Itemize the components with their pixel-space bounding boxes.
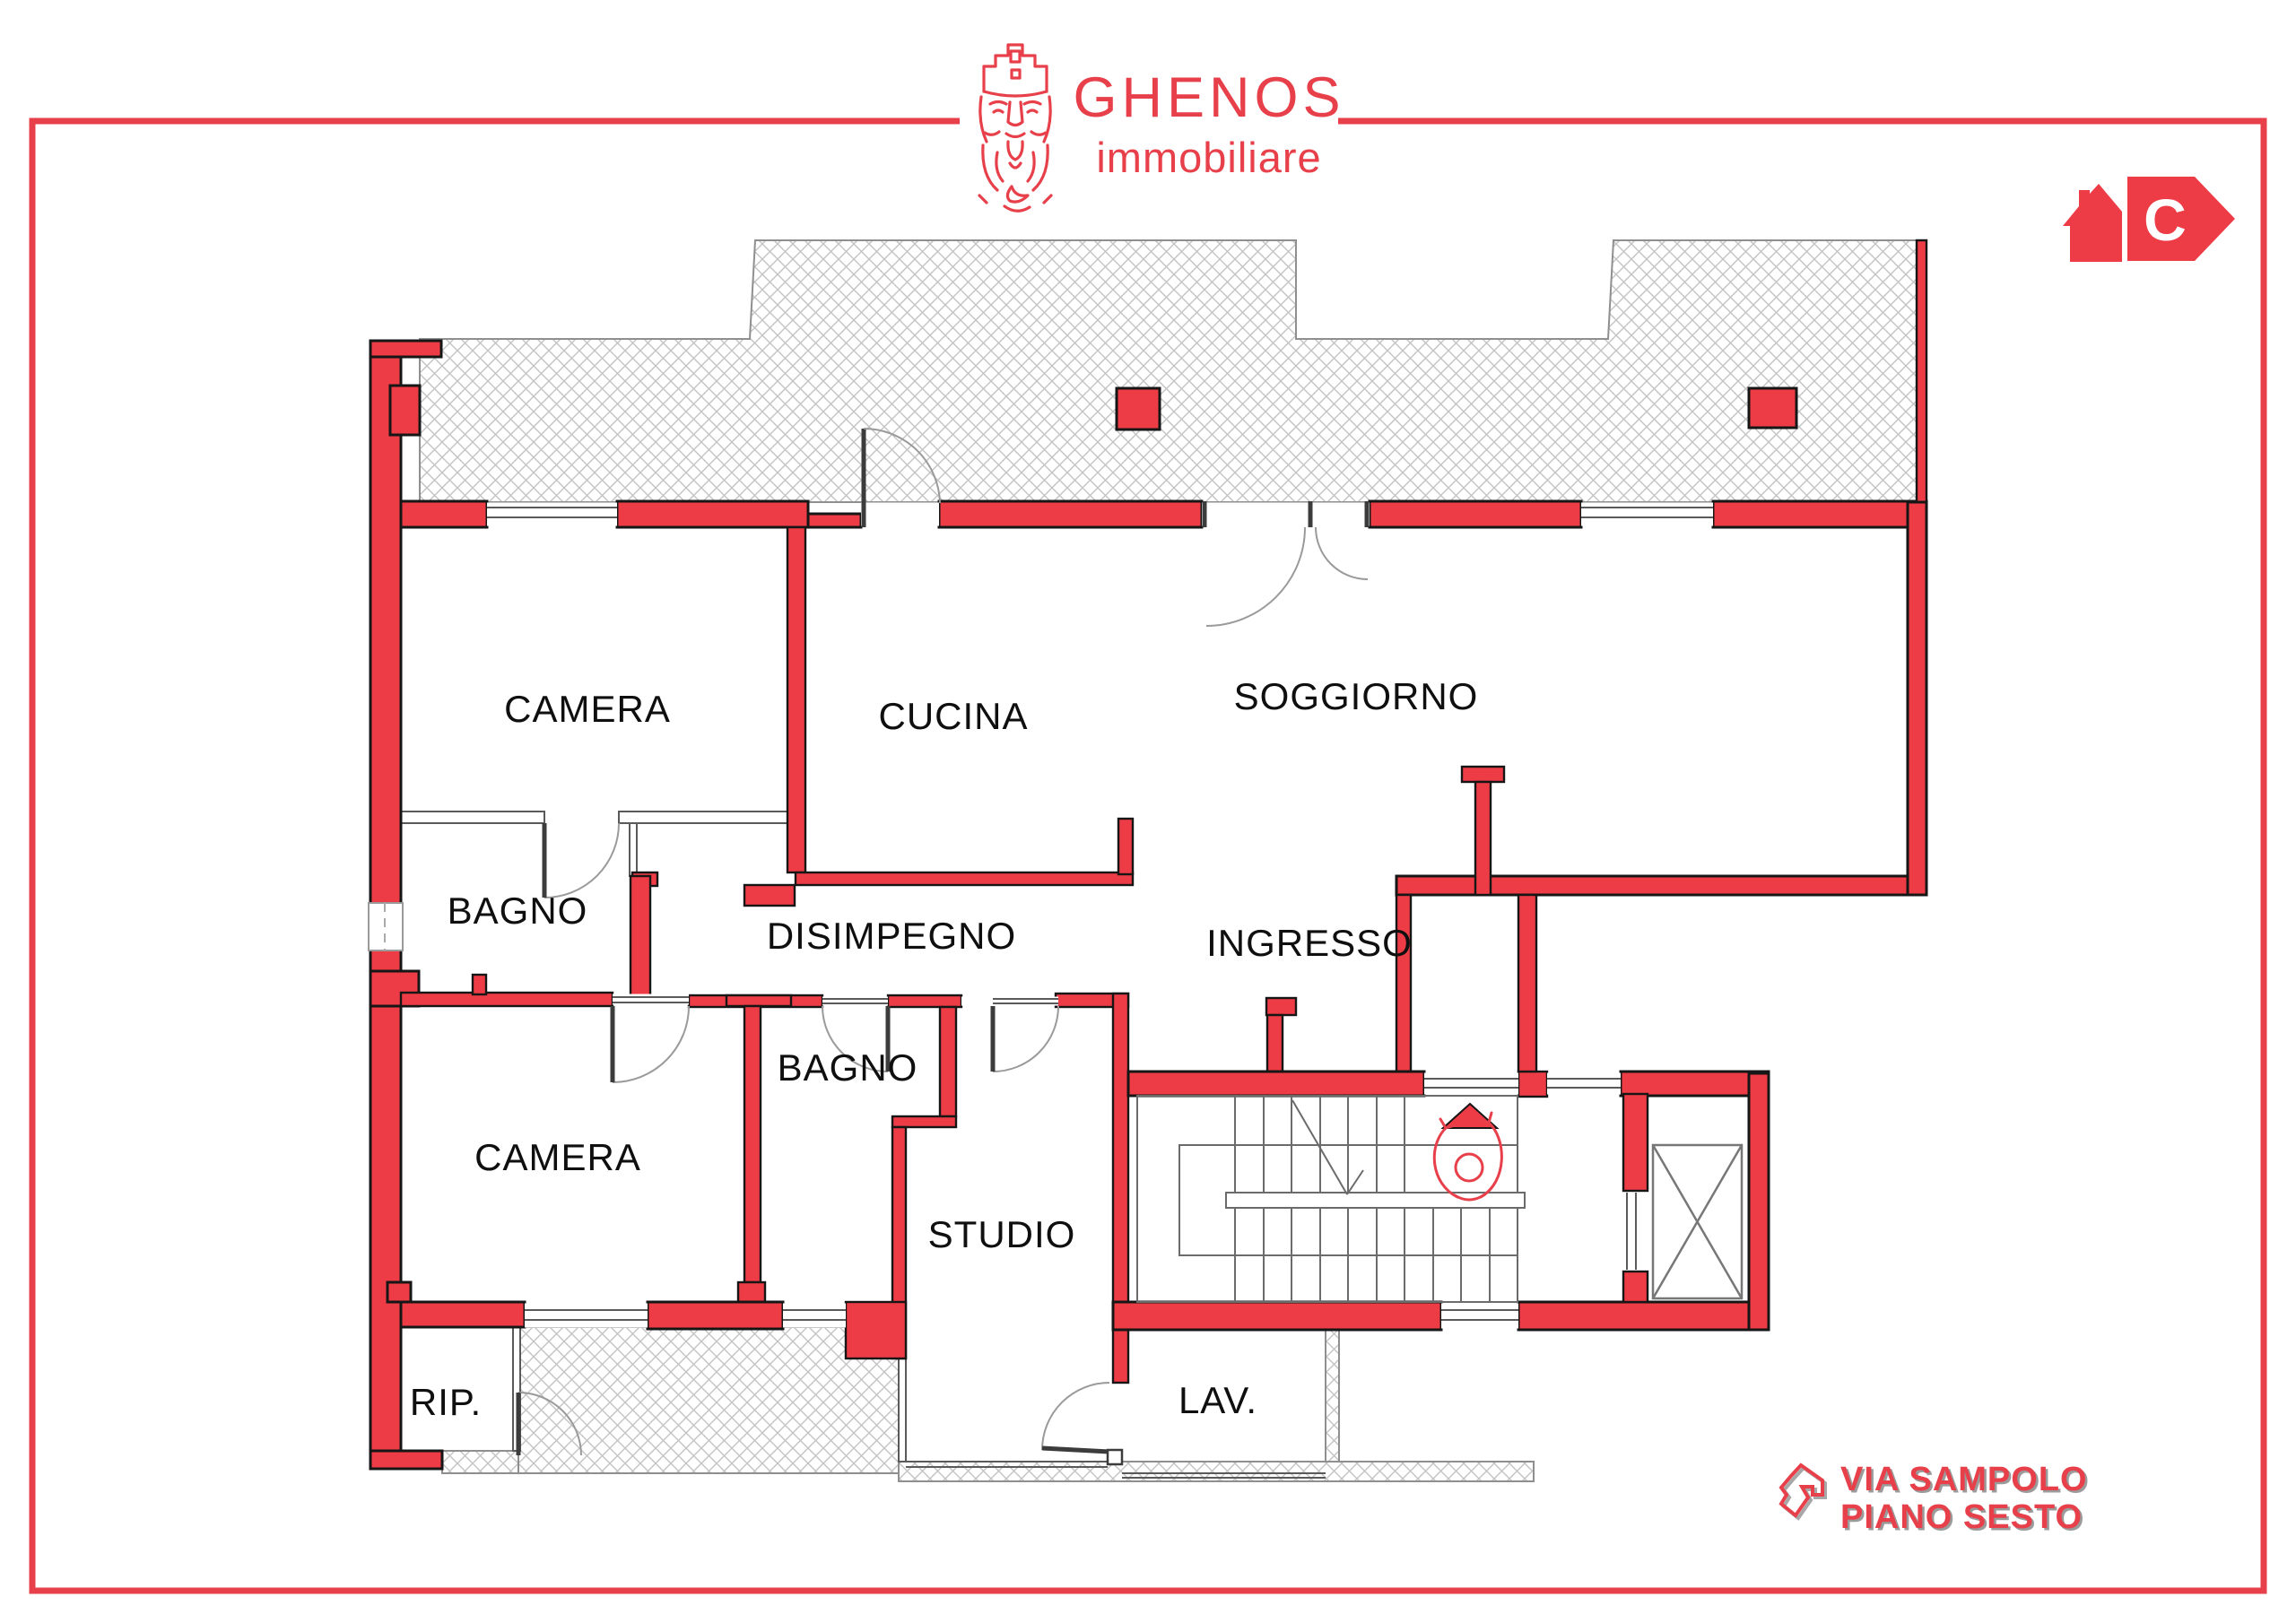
brand-tagline: immobiliare	[1096, 134, 1321, 181]
elevator-door-sill	[1622, 1193, 1649, 1270]
room-label-disimpegno: DISIMPEGNO	[767, 915, 1016, 957]
room-label-ripostiglio: RIP.	[410, 1381, 482, 1423]
window-camera-2	[525, 1304, 648, 1328]
room-label-lavanderia: LAV.	[1178, 1379, 1257, 1421]
entrance-door-sill	[1424, 1073, 1518, 1095]
address-line1: VIA SAMPOLO	[1840, 1461, 2088, 1498]
terrace-balcony	[420, 240, 1917, 502]
landing-opening-sill	[1547, 1073, 1621, 1095]
room-label-bagno-2: BAGNO	[778, 1046, 918, 1089]
energy-class-letter: C	[2144, 187, 2187, 253]
room-label-studio: STUDIO	[928, 1213, 1076, 1255]
window-left-wall	[369, 903, 403, 950]
double-door-soggiorno	[1202, 501, 1370, 626]
rear-balcony-walkway	[442, 1327, 1534, 1481]
brand-logo: GHENOS immobiliare	[979, 45, 1345, 211]
floorplan-page: GHENOS immobiliare C	[0, 0, 2296, 1623]
address-block: ​ VIA SAMPOLO VIA SAMPOLO PIANO SESTO PI…	[1781, 1461, 2090, 1539]
room-label-bagno-1: BAGNO	[448, 890, 588, 932]
room-label-camera-1: CAMERA	[504, 688, 671, 730]
door-sill-bagno-2	[822, 997, 888, 1006]
energy-class-badge: C	[2063, 177, 2235, 262]
mini-floorplan-icon	[1781, 1465, 1825, 1518]
window-camera-1	[487, 503, 617, 526]
room-label-cucina: CUCINA	[878, 695, 1028, 737]
door-sill-camera-2	[613, 994, 689, 1005]
terrace-pillar	[1749, 388, 1796, 428]
house-icon	[2063, 184, 2122, 262]
window-soggiorno	[1581, 503, 1713, 526]
king-logo-icon	[979, 45, 1051, 211]
door-sill-studio	[961, 997, 1058, 1006]
window-stair-landing	[1441, 1304, 1518, 1329]
terrace-pillar	[1117, 388, 1160, 430]
room-label-camera-2: CAMERA	[474, 1136, 641, 1178]
floorplan-canvas: GHENOS immobiliare C	[0, 0, 2296, 1623]
room-label-soggiorno: SOGGIORNO	[1234, 675, 1479, 717]
brand-name: GHENOS	[1073, 66, 1344, 129]
window-bagno-2	[783, 1304, 846, 1328]
stair-direction-marker	[1434, 1104, 1501, 1200]
address-line2: PIANO SESTO	[1840, 1498, 2083, 1536]
room-label-ingresso: INGRESSO	[1206, 922, 1413, 964]
stair-handrail	[1226, 1193, 1525, 1208]
elevator	[1653, 1145, 1742, 1298]
